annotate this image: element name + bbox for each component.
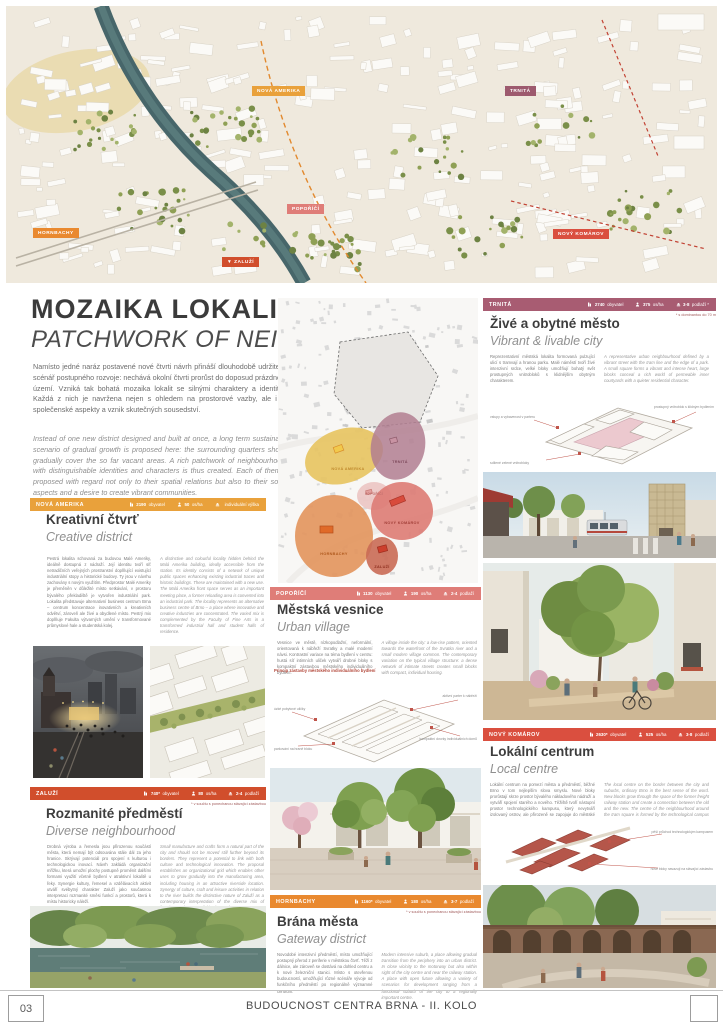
section-body: Drobná výroba a řemesla jsou přirozenou … [47,844,264,911]
floors-stat: 3-7podlaží [443,899,474,904]
section-title-cs: Městská vesnice [277,602,384,617]
neighbourhood-bar-hornbachy: HORNBACHY 1160*obyvatel 180os/ha 3-7podl… [270,895,481,908]
section-title-en: Creative district [46,530,132,544]
river-water [30,948,266,974]
aerial-city-render [6,6,717,283]
section-title-cs: Živé a obytné město [490,316,620,331]
map-label-trnita: TRNITÁ [392,459,408,464]
body-text-en: A village inside the city: a low-rise pa… [382,640,478,677]
bush [687,957,707,977]
floors-icon [676,302,681,307]
brick-viaduct [483,925,716,953]
neighbourhood-name: TRNITÁ [483,302,512,308]
section-title-en: Vibrant & livable city [490,334,602,348]
river-bank [30,972,266,988]
section-title-en: Local centre [490,762,558,776]
diagram-annotation: vstupy a vybavenost v parteru [490,415,535,419]
floors-icon [228,791,233,796]
neighbourhood-name: NOVÁ AMERIKA [30,502,84,508]
zaluzi-riverside-render [30,906,266,988]
density-stat: 180os/ha [403,899,431,904]
trnita-courtyard-render [483,563,716,720]
stage-lights [69,707,99,720]
section-title-en: Gateway district [277,932,366,946]
section-title-cs: Lokální centrum [490,744,594,759]
person-icon [635,302,640,307]
body-text-en: A distinctive and colourful locality hid… [160,556,264,635]
background-building [683,500,716,538]
person-icon [638,732,643,737]
footer-divider [0,990,723,991]
body-text-cs: Novodobé intenzivní předměstí, místo umo… [277,952,373,1001]
body-text-en: Modern intensive suburb, a place allowin… [382,952,478,1001]
neighbourhood-name: ZALUŽÍ [30,791,58,797]
pier [180,966,214,970]
trnita-superblock-diagram: vstupy a vybavenost v parteru sdílené ze… [488,394,716,470]
building-icon [143,791,148,796]
body-text-cs: Pestrá lokalita schovaná za budovou Malé… [47,556,151,635]
person-icon [191,791,196,796]
footer-corner-box [690,995,718,1022]
density-stat: 80os/ha [191,791,217,796]
neighbourhood-bar-novy-komarov: NOVÝ KOMÁROV 2630*obyvatel 525os/ha 3-8p… [483,728,716,741]
density-stat: 50os/ha [177,502,203,507]
section-body: Novodobé intenzivní předměstí, místo umo… [277,952,477,1001]
aerial-label-hornbachy: HORNBACHY [33,228,79,238]
map-label-zaluzi: ZALUŽÍ [374,564,390,569]
density-stat: 375os/ha [635,302,663,307]
map-label-poporici: POPOŘÍČÍ [365,491,383,496]
building-icon [587,302,592,307]
aerial-label-novy-komarov: NOVÝ KOMÁROV [553,229,609,239]
building-icon [354,899,359,904]
neighbourhood-bar-poporici: POPOŘÍČÍ 1130obyvatel 190os/ha 2-4podlaž… [270,587,481,600]
neighbourhood-bar-zaluzi: ZALUŽÍ 740*obyvatel 80os/ha 2-4podlaží [30,787,266,800]
person-icon [403,591,408,596]
floors-stat: 2-4podlaží [443,591,474,596]
section-title-en: Diverse neighbourhood [46,824,175,838]
footer-title: BUDOUCNOST CENTRA BRNA - II. KOLO [0,1000,723,1012]
map-label-novy-komarov: NOVÝ KOMÁROV [384,520,419,525]
diagram-annotation: kompaktní dvorky individuálních domů [420,737,478,741]
intro-paragraph-en: Instead of one new district designed and… [33,434,289,499]
floors-icon [678,732,683,737]
novy-komarov-viaduct-render [483,885,716,988]
nova-amerika-evening-render [33,646,143,778]
neighbourhood-map-diagram: NOVÁ AMERIKA TRNITÁ POPOŘÍČÍ NOVÝ KOMÁRO… [278,298,478,583]
density-stat: 525os/ha [638,732,666,737]
section-title-en: Urban village [277,620,350,634]
diagram-annotation: úzké pobytové uličky [274,707,306,711]
map-label-hornbachy: HORNBACHY [320,552,348,556]
body-text-cs: Reprezentativní městská lokalita formova… [490,354,595,384]
diagram-annotation: nové bloky navazují na stávající zástavb… [651,867,714,871]
diagram-annotation: parkování na hraně bloku [274,747,312,751]
building-icon [356,591,361,596]
floors-stat: 2-4podlaží [228,791,259,796]
population-stat: 740*obyvatel [143,791,178,796]
diagram-annotation: sdílené zelené vnitrobloky [490,461,529,465]
floors-stat: 3-8podlaží * [676,302,709,307]
building-icon [129,502,134,507]
floors-stat: 3-8podlaží [678,732,709,737]
body-text-en: Small manufacture and crafts form a natu… [160,844,264,911]
floors-icon [443,899,448,904]
density-stat: 190os/ha [403,591,431,596]
map-label-nova-amerika: NOVÁ AMERIKA [331,466,364,471]
diagram-title: Princip zástavby městského individuálníh… [274,668,394,673]
person-icon [177,502,182,507]
poporici-block-diagram: úzké pobytové uličky parkování na hraně … [272,680,479,766]
body-text-cs: Drobná výroba a řemesla jsou přirozenou … [47,844,151,911]
nova-amerika-axon-render [150,646,265,778]
section-title-cs: Rozmanité předměstí [46,806,183,821]
corner-chip [674,136,704,149]
poporici-street-render [270,768,481,890]
corner-chip [658,14,704,30]
diagram-annotation: prostupný vnitroblok s klidným bydlením [654,405,714,409]
intro-paragraph-cs: Namísto jedné naráz postavené nové čtvrt… [33,362,289,416]
novy-komarov-campus-diagram: pěší průchod technologickým kampusem nov… [490,818,715,880]
floors-stat: individuální výška [215,502,259,507]
aerial-label-nova-amerika: NOVÁ AMERIKA [252,86,305,96]
diagram-annotation: pěší průchod technologickým kampusem [652,830,714,834]
aerial-label-trnita: TRNITÁ [505,86,536,96]
section-body: Reprezentativní městská lokalita formova… [490,354,709,384]
aerial-label-poporici: POPOŘÍČÍ [287,204,324,214]
person-icon [403,899,408,904]
population-stat: 2740obyvatel [587,302,623,307]
population-stat: 2190obyvatel [129,502,165,507]
neighbourhood-name: NOVÝ KOMÁROV [483,732,540,738]
population-stat: 1130obyvatel [356,591,392,596]
building-icon [589,732,594,737]
section-body: Pestrá lokalita schovaná za budovou Malé… [47,556,264,635]
neighbourhood-bar-trnita: TRNITÁ 2740obyvatel 375os/ha 3-8podlaží … [483,298,716,311]
floors-icon [215,502,220,507]
neighbourhood-name: HORNBACHY [270,899,316,905]
body-text-en: A representative urban neighbourhood def… [604,354,709,384]
section-title-cs: Brána města [277,914,358,929]
tower-building [649,484,685,538]
section-title-cs: Kreativní čtvrť [46,512,139,527]
poster-title-cs: MOZAIKA LOKALIT [31,294,295,325]
population-stat: 2630*obyvatel [589,732,627,737]
neighbourhood-bar-nova-amerika: NOVÁ AMERIKA 2190obyvatel 50os/ha indivi… [30,498,266,511]
neighbourhood-name: POPOŘÍČÍ [270,591,306,597]
aerial-label-zaluzi: ▼ ZALUŽÍ [222,257,259,267]
trnita-street-render [483,472,716,558]
diagram-annotation: aktivní parter k nábřeží [443,694,478,698]
floors-icon [443,591,448,596]
competition-poster: NOVÁ AMERIKA TRNITÁ POPOŘÍČÍ HORNBACHY N… [0,0,723,1024]
population-stat: 1160*obyvatel [354,899,392,904]
